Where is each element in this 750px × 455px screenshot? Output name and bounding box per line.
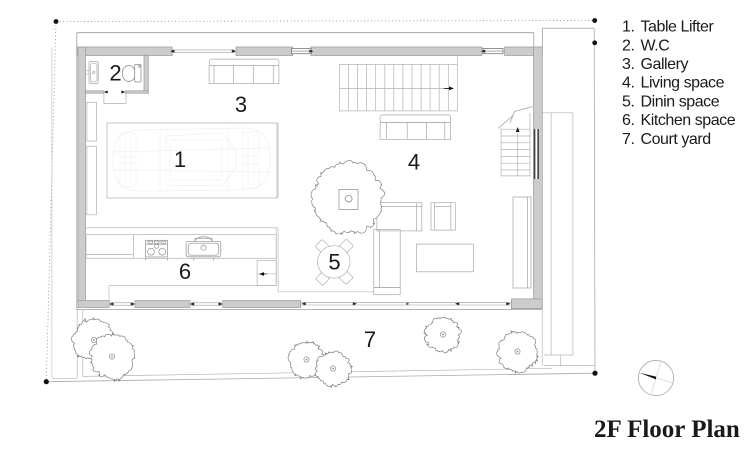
- svg-text:5.: 5.: [622, 93, 634, 110]
- svg-text:4: 4: [408, 150, 420, 175]
- svg-text:4.: 4.: [622, 75, 634, 92]
- svg-text:2F Floor Plan: 2F Floor Plan: [594, 416, 740, 443]
- svg-text:1: 1: [174, 147, 186, 172]
- svg-text:6.: 6.: [622, 112, 634, 129]
- svg-text:2: 2: [109, 61, 121, 86]
- svg-text:3: 3: [235, 92, 247, 117]
- svg-text:Gallery: Gallery: [641, 56, 689, 73]
- svg-text:6: 6: [179, 259, 191, 284]
- svg-text:Table Lifter: Table Lifter: [641, 19, 715, 36]
- svg-text:Kitchen space: Kitchen space: [641, 112, 736, 129]
- svg-text:5: 5: [328, 250, 340, 275]
- svg-text:Court yard: Court yard: [641, 131, 711, 148]
- svg-text:7.: 7.: [622, 131, 634, 148]
- svg-text:W.C: W.C: [641, 37, 670, 54]
- svg-text:2.: 2.: [622, 37, 634, 54]
- svg-text:Living space: Living space: [641, 75, 725, 92]
- svg-text:3.: 3.: [622, 56, 634, 73]
- svg-text:1.: 1.: [622, 19, 634, 36]
- svg-text:Dinin space: Dinin space: [641, 93, 720, 110]
- svg-text:7: 7: [364, 327, 376, 352]
